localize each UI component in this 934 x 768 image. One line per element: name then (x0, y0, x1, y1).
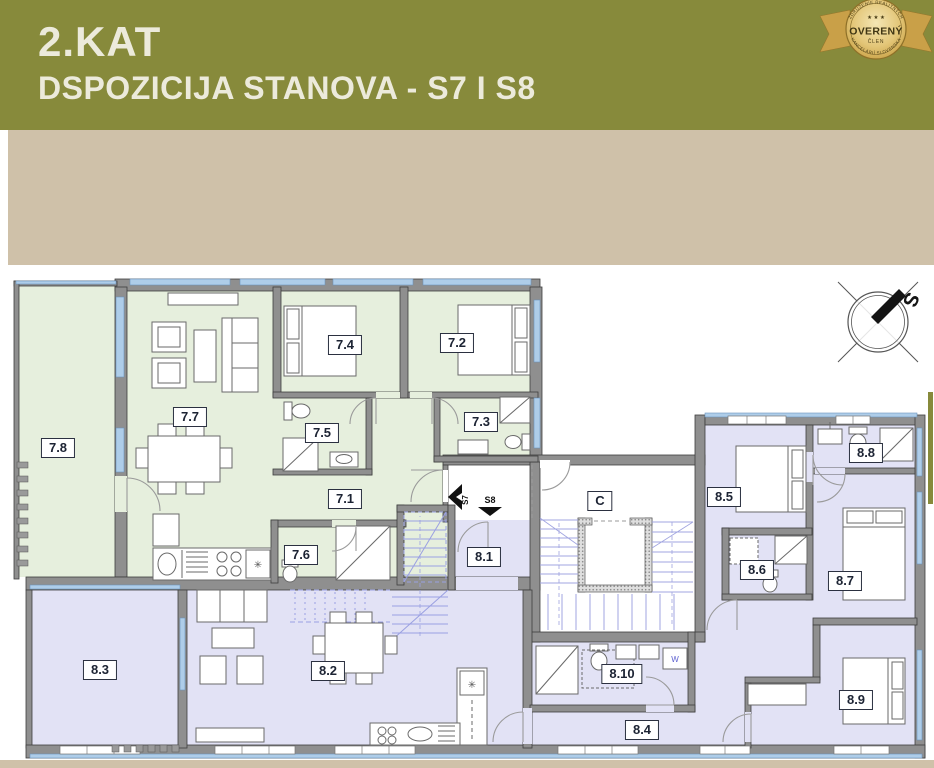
shower-icon (880, 428, 913, 461)
shower-icon (500, 397, 530, 423)
room-label-c: C (587, 491, 612, 511)
svg-text:✳: ✳ (254, 560, 262, 571)
washer-label: W (671, 655, 679, 664)
room-label-8-5: 8.5 (707, 487, 741, 507)
room-label-8-8: 8.8 (849, 443, 883, 463)
room-label-7-2: 7.2 (440, 333, 474, 353)
compass-icon: S (838, 282, 923, 362)
page-subtitle: DSPOZICIJA STANOVA - S7 I S8 (38, 70, 536, 107)
shower-icon (536, 646, 578, 694)
bottom-band (0, 760, 934, 768)
badge-subtitle: ČLEN (868, 38, 885, 45)
tv-sideboard-icon (168, 293, 238, 305)
room-label-8-3: 8.3 (83, 660, 117, 680)
room-label-8-4: 8.4 (625, 720, 659, 740)
room-label-8-9: 8.9 (839, 690, 873, 710)
room-label-7-3: 7.3 (464, 412, 498, 432)
sink-icon (330, 452, 358, 467)
shower-icon (336, 526, 390, 580)
coffee-table-icon (212, 628, 254, 648)
sofa-icon (197, 590, 267, 622)
room-label-7-1: 7.1 (328, 489, 362, 509)
bed-icon (736, 446, 806, 512)
beige-band (8, 130, 934, 265)
floor-title: 2.KAT (38, 18, 161, 66)
armchair-icon (200, 656, 226, 684)
sofa-icon (222, 318, 258, 392)
room-label-8-2: 8.2 (311, 661, 345, 681)
svg-text:✳: ✳ (468, 680, 476, 691)
coffee-table-icon (194, 330, 216, 382)
room-label-7-8: 7.8 (41, 438, 75, 458)
room-label-7-6: 7.6 (284, 545, 318, 565)
room-label-8-10: 8.10 (601, 664, 642, 684)
armchair-icon (237, 656, 263, 684)
badge-title: OVERENÝ (849, 25, 902, 38)
room-label-8-7: 8.7 (828, 571, 862, 591)
svg-text:S8: S8 (484, 495, 495, 505)
closet-icon (748, 684, 806, 705)
room-label-7-4: 7.4 (328, 335, 362, 355)
room-label-7-7: 7.7 (173, 407, 207, 427)
header-banner: 2.KAT DSPOZICIJA STANOVA - S7 I S8 (0, 0, 934, 130)
tv-sideboard-icon (196, 728, 264, 742)
sink-icon (458, 440, 488, 454)
shower-icon (775, 536, 807, 564)
page-edge-mark (928, 392, 933, 504)
flyer-page: 2.KAT DSPOZICIJA STANOVA - S7 I S8 ZDRUŽ… (0, 0, 934, 768)
armchair-icon (152, 358, 186, 388)
toilet-icon (284, 402, 310, 420)
armchair-icon (152, 322, 186, 352)
room-label-8-6: 8.6 (740, 560, 774, 580)
toilet-icon (505, 434, 530, 450)
room-7-8-terrace (16, 284, 122, 577)
verified-member-badge: ZDRUŽENIE REALITNÝCH KANCELÁRIÍ SLOVENSK… (816, 0, 934, 64)
room-label-8-1: 8.1 (467, 547, 501, 567)
svg-text:S7: S7 (461, 495, 470, 505)
badge-stars: ★ ★ ★ (867, 14, 885, 21)
room-label-7-5: 7.5 (305, 423, 339, 443)
